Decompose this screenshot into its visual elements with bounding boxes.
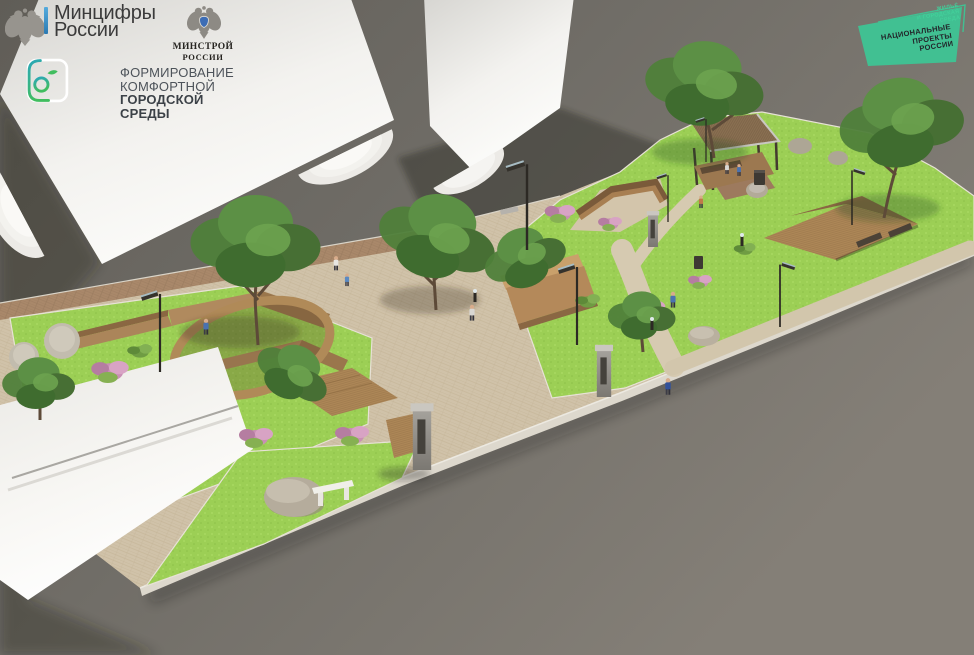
- minstroy-emblem-icon: [187, 4, 221, 40]
- wayfinding-stele: [647, 211, 659, 247]
- fkgs-line2: КОМФОРТНОЙ: [120, 80, 255, 94]
- fkgs-line1: ФОРМИРОВАНИЕ: [120, 66, 255, 80]
- render-canvas: Минцифры России ФОРМИРОВАНИЕ КОМФОРТНОЙ …: [0, 0, 974, 655]
- fkgs-line3: ГОРОДСКОЙ СРЕДЫ: [120, 93, 255, 120]
- minstroy-logo: МИНСТРОЙ РОССИИ: [172, 2, 234, 66]
- logo-divider-bar: [44, 7, 48, 34]
- litter-bin: [694, 256, 703, 269]
- mintsifry-line2: России: [54, 22, 156, 39]
- national-projects-logo: ЖИЛЬЁ И ГОРОДСКАЯ СРЕДА НАЦИОНАЛЬНЫЕ ПРО…: [844, 0, 974, 74]
- minstroy-line2: РОССИИ: [172, 52, 234, 62]
- wayfinding-stele: [411, 403, 434, 470]
- double-eagle-icon: [5, 6, 45, 46]
- minstroy-line1: МИНСТРОЙ: [172, 42, 234, 52]
- wayfinding-stele: [595, 345, 613, 397]
- fkgs-sprout-icon: [25, 57, 70, 104]
